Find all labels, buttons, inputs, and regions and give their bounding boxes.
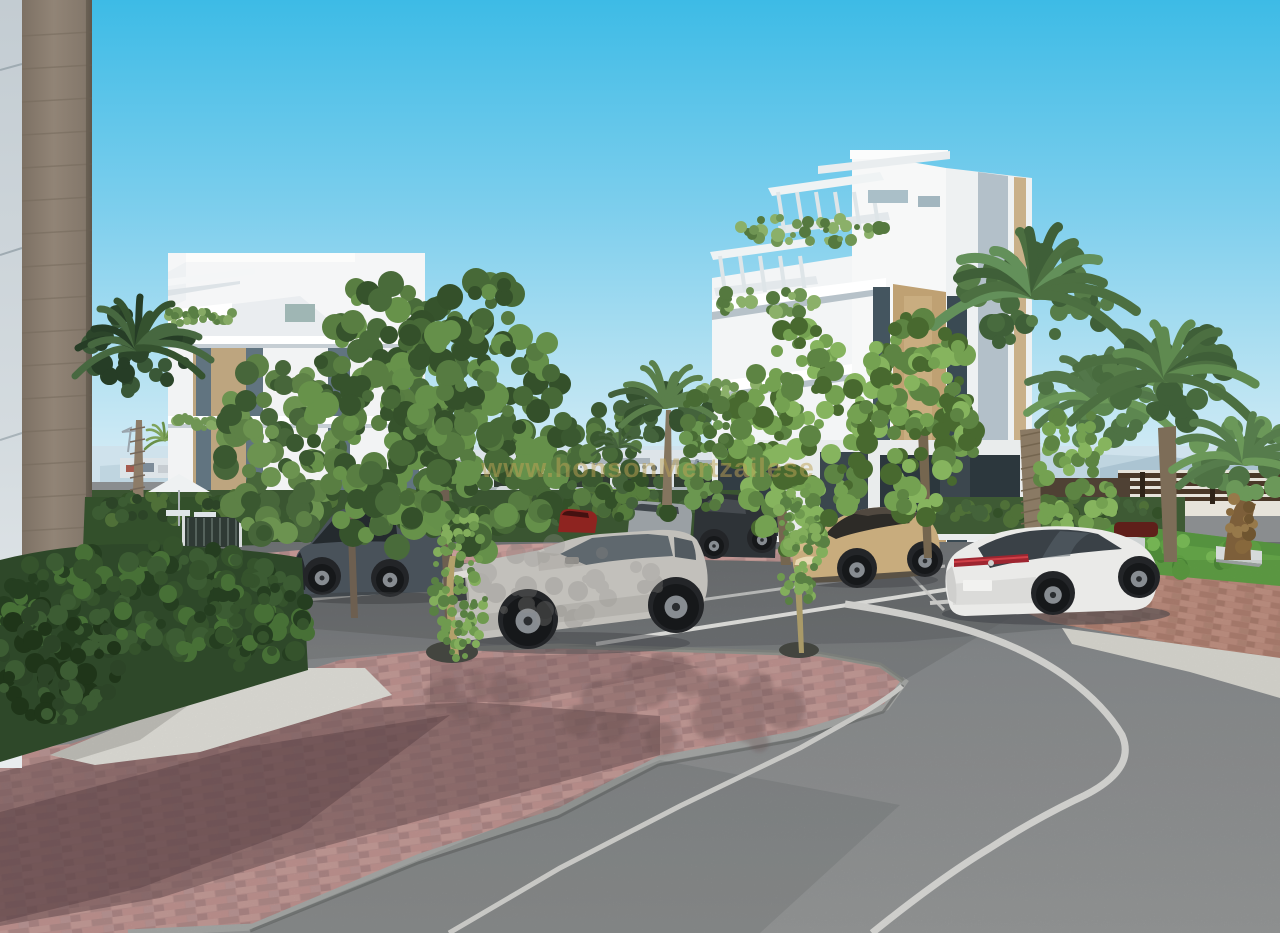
svg-text:www.honsonMertzailese: www.honsonMertzailese [480,453,815,483]
